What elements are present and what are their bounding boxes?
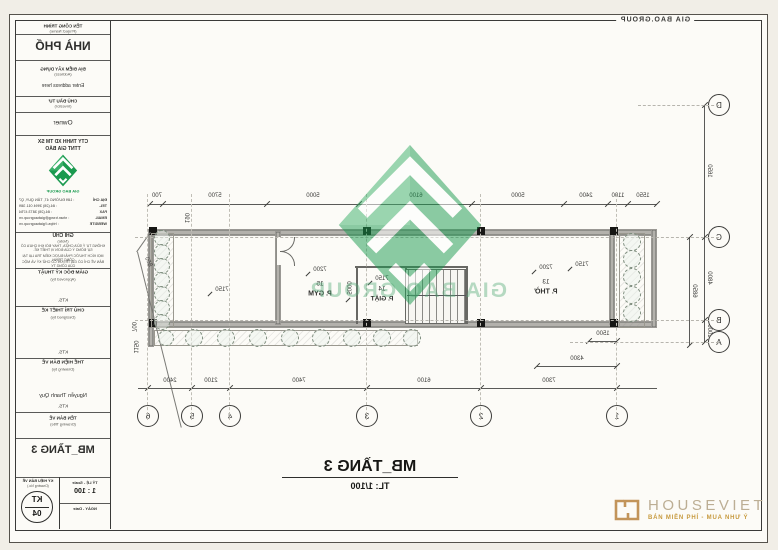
contact-label: EMAIL	[95, 216, 107, 220]
dim-leader	[208, 292, 213, 297]
contact-value: : https://giabaogroup.vn	[19, 222, 59, 226]
scale-label: TỶ LỆ - Scale	[60, 480, 110, 485]
door-arc	[280, 251, 295, 266]
contact-label: WEBSITE	[90, 222, 107, 226]
dim-label: 5000	[306, 193, 319, 199]
room-dim: 7150	[215, 287, 228, 293]
sign3-label: THỂ HIỆN BẢN VẼ	[16, 361, 110, 366]
room-name: P. THỜ	[535, 289, 558, 296]
tree-icon	[373, 329, 391, 347]
dim-leader	[532, 270, 537, 275]
drawing-no-code: KT	[22, 495, 52, 504]
houseviet-logo-icon	[612, 496, 642, 529]
mirrored-sheet-container: GIA BAO.GROUP	[0, 0, 778, 550]
grid-axis	[638, 105, 719, 106]
tree-icon	[343, 329, 361, 347]
wall-balcony-partition	[609, 231, 615, 325]
dim-tick	[614, 338, 620, 344]
dim-label: 1550	[636, 193, 649, 199]
contact-label: TEL.	[99, 204, 107, 208]
sign2-sublabel: (Designed by)	[16, 314, 110, 319]
plan-title: MB_TẦNG 3	[324, 458, 416, 476]
gia-bao-watermark-text: GIA BAO GROUP	[309, 279, 507, 303]
contact-value: : 84.(28) 3994 011 389	[19, 204, 57, 208]
plan-title-underline	[282, 477, 458, 478]
tree-icon	[403, 329, 421, 347]
dim-tick	[654, 201, 660, 207]
drawing-title-sublabel: (Drawing Title)	[16, 421, 110, 426]
date-label: NGÀY - Date	[60, 506, 110, 511]
dim-label: 1100	[612, 193, 625, 199]
room-number: 13	[542, 279, 549, 286]
room-dim: 7200	[539, 265, 552, 271]
project-name: NHÀ PHỐ	[16, 39, 110, 53]
grid-bubble-col: 2	[470, 405, 492, 427]
drawing-title-value: MB_TẦNG 3	[16, 444, 110, 456]
sign2-label: CHỦ TRÌ THIẾT KẾ	[16, 309, 110, 314]
company-name-1: CTY TNHH XD TM SX	[16, 139, 110, 145]
dim-label: 4800	[706, 271, 712, 284]
grid-bubble-col: 1	[606, 405, 628, 427]
dim-label: 5700	[208, 193, 221, 199]
sign1-title: KTS.	[16, 298, 110, 303]
room-dim: 7150	[575, 262, 588, 268]
tree-icon	[158, 330, 174, 346]
houseviet-watermark: HOUSEVIET BÁN MIỄN PHÍ - MUA NHƯ Ý	[612, 492, 772, 532]
dim-label: 4300	[570, 356, 583, 362]
grid-bubble-col: 3	[356, 405, 378, 427]
grid-bubble-col: 4	[219, 405, 241, 427]
project-sublabel: (Project Name)	[16, 29, 110, 34]
gia-bao-logo-icon	[48, 154, 78, 187]
wall-left	[651, 229, 657, 328]
tree-icon	[185, 329, 203, 347]
contact-value: : 189 ĐƯỜNG 47, TÂN QUY, Q7	[19, 198, 74, 202]
dim-label: 190	[183, 213, 189, 223]
scale-value: 1 : 100	[60, 488, 110, 495]
note-sublabel: (Note)	[16, 239, 110, 244]
sign3-sublabel: (Drawing by)	[16, 366, 110, 371]
dim-label: 700	[130, 322, 136, 332]
note-line-1: KHÔNG TỰ Ý SỬA CHỮA, THAY ĐỔI KHI CHƯA C…	[20, 244, 106, 253]
plan-scale: TL: 1/100	[350, 481, 389, 491]
grid-axis	[191, 194, 192, 420]
dim-label: 1650	[706, 164, 712, 177]
address-sublabel: (Address)	[16, 72, 110, 77]
dim-label: 6850	[691, 284, 697, 297]
plan-drawing-area: 1550 1100 2400 5000 6100 5000 5700 700 7…	[0, 0, 778, 550]
tree-icon	[154, 314, 170, 330]
dim-label: 5000	[511, 193, 524, 199]
dimension-line	[704, 105, 705, 342]
tree-icon	[623, 268, 641, 286]
dim-label: 2100	[204, 378, 217, 384]
tree-icon	[281, 329, 299, 347]
dim-label: 700	[152, 193, 162, 199]
dim-leader	[568, 267, 573, 272]
drawing-no-label: KÝ HIỆU BẢN VẼ	[16, 479, 60, 483]
company-name-2: TTNT GIA BẢO	[16, 146, 110, 152]
dim-label: 1150	[132, 341, 138, 354]
room-dim: 7200	[313, 267, 326, 273]
sign3-title: KTS.	[16, 404, 110, 409]
dim-label: 1500	[596, 331, 609, 337]
drawing-no-number: 04	[22, 509, 52, 518]
grid-axis	[229, 194, 230, 420]
investor-value: Owner	[16, 120, 110, 127]
title-block: TÊN CÔNG TRÌNH (Project Name) NHÀ PHỐ ĐỊ…	[16, 20, 111, 529]
tree-icon	[623, 233, 641, 251]
tree-icon	[623, 250, 641, 268]
investor-sublabel: (Investor)	[16, 104, 110, 109]
dim-label: 6100	[417, 378, 430, 384]
dim-label: 7300	[542, 378, 555, 384]
drawing-sheet-screenshot: { "colors": { "logo_green": "#1a9a4f", "…	[0, 0, 778, 550]
dimension-line	[138, 388, 657, 389]
drawing-title-label: TÊN BẢN VẼ	[16, 416, 110, 421]
grid-axis	[570, 342, 719, 343]
tree-icon	[249, 329, 267, 347]
tree-icon	[623, 304, 641, 322]
company-brand: GIA BAO GROUP	[16, 189, 110, 194]
contact-label: ĐỊA CHỈ	[93, 198, 107, 202]
note-line-3: BẢN VẼ CHỈ CÓ GIÁ TRỊ KHI CÓ CHỮ KÝ VÀ M…	[20, 260, 106, 269]
dim-tick	[614, 363, 620, 369]
dim-label: 7400	[292, 378, 305, 384]
tree-icon	[312, 329, 330, 347]
contact-label: FAX	[100, 210, 107, 214]
contact-value: : 84.(28) 3873 4754	[19, 210, 52, 214]
sign2-title: KTS.	[16, 350, 110, 355]
address-value: Enter address here	[16, 83, 110, 89]
drawing-no-circle: KT 04	[21, 491, 53, 523]
houseviet-tagline: BÁN MIỄN PHÍ - MUA NHƯ Ý	[648, 515, 766, 521]
tree-icon	[217, 329, 235, 347]
houseviet-wordmark: HOUSEVIET	[648, 497, 766, 514]
dimension-line	[537, 366, 617, 367]
grid-bubble-col: 6	[137, 405, 159, 427]
dim-label: 2400	[579, 193, 592, 199]
wall-bottom	[148, 321, 657, 328]
sign1-label: GIÁM ĐỐC KỸ THUẬT	[16, 271, 110, 276]
drawing-no-sublabel: (Drawing No.)	[16, 484, 60, 488]
dim-leader	[306, 272, 311, 277]
grid-bubble-col: 5	[181, 405, 203, 427]
tree-icon	[623, 286, 641, 304]
contact-value: : nhan.trang@giabaogroup.vn	[19, 216, 69, 220]
sign1-sublabel: (Approved by)	[16, 276, 110, 281]
grid-axis	[147, 194, 148, 420]
dimension-line	[689, 237, 690, 345]
dim-label: 2400	[163, 378, 176, 384]
sign3-name: Nguyễn Thanh Quy	[16, 393, 110, 399]
grid-axis	[616, 194, 617, 420]
door-arc	[280, 237, 295, 252]
